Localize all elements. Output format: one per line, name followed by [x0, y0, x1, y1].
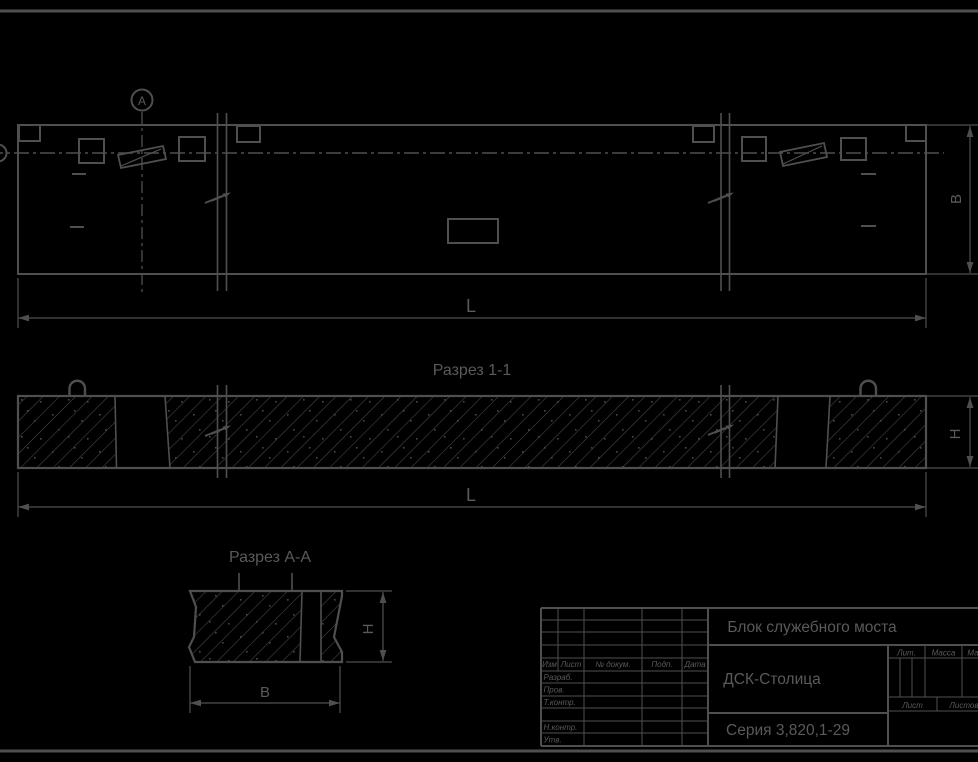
organization-name: ДСК-Столица	[723, 671, 821, 688]
section-a-a-dim-height-label: Н	[360, 624, 377, 635]
section-a-a-joint-lines	[300, 591, 321, 662]
row-n-kontr: Н.контр.	[544, 723, 578, 732]
plan-dim-length-label: L	[466, 296, 476, 316]
section-a-a-trace-ticks	[239, 573, 292, 590]
section-1-1: Разрез 1-1	[18, 362, 978, 517]
plan-center-opening	[448, 219, 498, 243]
engineering-drawing: А	[0, 0, 978, 762]
section-a-a-hatch	[189, 591, 342, 662]
document-title: Блок служебного моста	[727, 619, 897, 636]
plan-dim-width: В	[926, 125, 978, 274]
col-data: Дата	[683, 660, 706, 669]
section-a-a-dim-width: В	[190, 666, 340, 713]
section-a-a: Разрез А-А Н	[189, 549, 392, 713]
row-t-kontr: Т.контр.	[544, 698, 576, 707]
section-1-1-dim-height: Н	[926, 396, 978, 468]
section-1-1-dim-length: L	[18, 472, 926, 517]
title-block-change-header: Изм Лист № докум. Подп. Дата	[542, 660, 706, 669]
plan-dim-length: L	[18, 278, 926, 328]
col-doc: № докум.	[595, 660, 630, 669]
section-1-1-dim-length-label: L	[466, 485, 476, 505]
plan-break-right	[708, 113, 734, 291]
plan-anchor-squares	[79, 137, 866, 163]
section-a-a-title: Разрез А-А	[229, 549, 311, 566]
col-list: Лист	[560, 660, 582, 669]
row-razrab: Разраб.	[544, 673, 573, 682]
plan-corner-embeds	[19, 125, 926, 142]
plan-dim-width-label: В	[948, 194, 965, 204]
prop-listov: Листов	[948, 701, 978, 710]
row-utv: Утв.	[543, 736, 562, 745]
lifting-loops	[70, 381, 877, 396]
section-1-1-dim-height-label: Н	[947, 429, 964, 440]
section-1-1-title: Разрез 1-1	[433, 362, 512, 379]
drawing-frame	[0, 11, 978, 751]
detail-marker-label: А	[138, 94, 146, 108]
col-izm: Изм	[542, 660, 557, 669]
detail-marker-a: А	[132, 90, 153, 295]
col-podp: Подп.	[651, 660, 672, 669]
section-1-1-hatch	[18, 396, 926, 468]
prop-list: Лист	[901, 701, 923, 710]
section-a-a-dim-width-label: В	[260, 684, 270, 701]
plan-view: А	[0, 90, 978, 329]
series-designation: Серия 3,820,1-29	[726, 722, 850, 739]
plan-break-left	[205, 113, 231, 291]
title-block-signature-rows: Разраб. Пров. Т.контр. Н.контр. Утв.	[543, 673, 578, 745]
prop-masshtab: Масштаб	[967, 649, 978, 658]
prop-lit: Лит.	[896, 649, 916, 658]
section-a-a-dim-height: Н	[346, 591, 392, 662]
title-block: Изм Лист № докум. Подп. Дата Разраб. Про…	[541, 608, 978, 746]
row-prov: Пров.	[544, 686, 565, 695]
prop-massa: Масса	[932, 649, 956, 658]
